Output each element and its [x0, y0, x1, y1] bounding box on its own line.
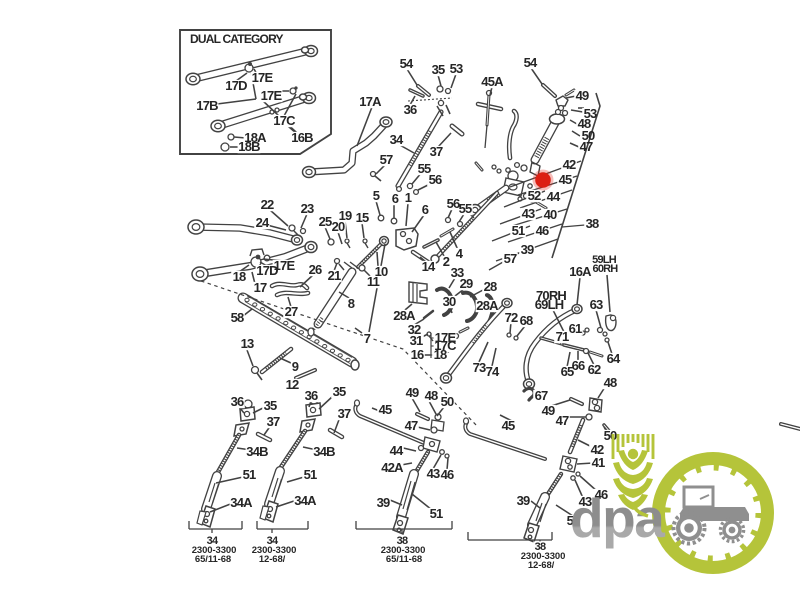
svg-text:36: 36 — [231, 394, 244, 409]
svg-text:37: 37 — [338, 406, 351, 421]
svg-text:39: 39 — [377, 495, 390, 510]
svg-text:9: 9 — [292, 359, 299, 374]
svg-text:35: 35 — [264, 398, 277, 413]
svg-text:50: 50 — [604, 428, 617, 443]
svg-text:40: 40 — [544, 207, 557, 222]
svg-text:42A: 42A — [381, 460, 404, 475]
svg-text:17: 17 — [254, 280, 267, 295]
svg-text:34: 34 — [390, 132, 404, 147]
svg-text:57: 57 — [380, 152, 393, 167]
svg-text:73: 73 — [473, 360, 486, 375]
svg-text:17D: 17D — [225, 78, 247, 93]
svg-text:46: 46 — [536, 223, 549, 238]
svg-text:47: 47 — [556, 413, 569, 428]
svg-text:34B: 34B — [246, 444, 268, 459]
svg-text:36: 36 — [305, 388, 318, 403]
svg-text:8: 8 — [348, 296, 355, 311]
svg-text:38: 38 — [586, 216, 599, 231]
svg-text:6: 6 — [392, 191, 399, 206]
svg-text:42: 42 — [563, 157, 576, 172]
svg-text:47: 47 — [405, 418, 418, 433]
svg-text:45: 45 — [379, 402, 392, 417]
svg-text:49: 49 — [542, 403, 555, 418]
svg-text:50: 50 — [441, 394, 454, 409]
svg-text:18B: 18B — [238, 139, 260, 154]
svg-text:17E: 17E — [252, 70, 274, 85]
svg-text:37: 37 — [267, 414, 280, 429]
svg-text:65/11-68: 65/11-68 — [386, 554, 422, 565]
svg-text:dpa: dpa — [570, 487, 665, 549]
svg-text:16: 16 — [411, 347, 424, 362]
svg-text:63: 63 — [590, 297, 603, 312]
svg-text:22: 22 — [261, 197, 274, 212]
svg-text:49: 49 — [576, 88, 589, 103]
svg-text:12-68/: 12-68/ — [259, 554, 286, 565]
svg-text:61: 61 — [569, 321, 582, 336]
svg-text:60RH: 60RH — [593, 263, 619, 275]
svg-text:34B: 34B — [313, 444, 335, 459]
svg-text:49: 49 — [406, 385, 419, 400]
svg-text:1: 1 — [405, 190, 412, 205]
svg-text:17A: 17A — [359, 94, 382, 109]
svg-text:56: 56 — [429, 172, 442, 187]
svg-text:26: 26 — [309, 262, 322, 277]
svg-text:39: 39 — [521, 242, 534, 257]
svg-text:11: 11 — [367, 274, 380, 289]
svg-text:6: 6 — [422, 202, 429, 217]
svg-text:21: 21 — [328, 268, 341, 283]
svg-text:5: 5 — [373, 188, 380, 203]
svg-text:52: 52 — [528, 188, 541, 203]
svg-text:45: 45 — [502, 418, 515, 433]
svg-text:35: 35 — [432, 62, 445, 77]
svg-text:16B: 16B — [291, 130, 313, 145]
svg-text:15: 15 — [356, 210, 369, 225]
svg-text:34A: 34A — [294, 493, 317, 508]
svg-text:45: 45 — [559, 172, 572, 187]
svg-text:65: 65 — [561, 364, 574, 379]
svg-text:47: 47 — [580, 139, 593, 154]
svg-text:39: 39 — [517, 493, 530, 508]
svg-text:51: 51 — [304, 467, 317, 482]
svg-text:DUAL CATEGORY: DUAL CATEGORY — [190, 32, 284, 46]
svg-text:41: 41 — [592, 455, 605, 470]
svg-text:44: 44 — [390, 443, 404, 458]
svg-text:18: 18 — [434, 347, 447, 362]
svg-text:16A: 16A — [569, 264, 592, 279]
svg-text:67: 67 — [535, 388, 548, 403]
svg-text:17C: 17C — [273, 113, 296, 128]
svg-text:51: 51 — [512, 223, 525, 238]
svg-text:48: 48 — [425, 388, 438, 403]
svg-text:51: 51 — [430, 506, 443, 521]
svg-text:34A: 34A — [230, 495, 253, 510]
svg-text:66: 66 — [572, 358, 585, 373]
svg-text:69LH: 69LH — [535, 297, 564, 312]
svg-text:72: 72 — [505, 310, 518, 325]
svg-text:28A: 28A — [476, 298, 499, 313]
svg-text:17D: 17D — [256, 263, 278, 278]
svg-text:2: 2 — [443, 254, 450, 269]
svg-text:31: 31 — [410, 333, 423, 348]
svg-text:12-68/: 12-68/ — [528, 560, 555, 571]
svg-text:30: 30 — [443, 294, 456, 309]
svg-text:57: 57 — [504, 251, 517, 266]
svg-text:44: 44 — [547, 189, 561, 204]
svg-text:28A: 28A — [393, 308, 416, 323]
svg-text:62: 62 — [588, 362, 601, 377]
svg-text:24: 24 — [256, 215, 270, 230]
svg-text:45A: 45A — [481, 74, 504, 89]
svg-text:27: 27 — [285, 304, 298, 319]
svg-text:55: 55 — [459, 201, 472, 216]
svg-text:35: 35 — [333, 384, 346, 399]
svg-text:25: 25 — [319, 214, 332, 229]
svg-text:18: 18 — [233, 269, 246, 284]
svg-text:48: 48 — [604, 375, 617, 390]
svg-text:29: 29 — [460, 276, 473, 291]
svg-text:53: 53 — [450, 61, 463, 76]
svg-text:14: 14 — [422, 259, 436, 274]
svg-text:23: 23 — [301, 201, 314, 216]
svg-text:43: 43 — [522, 206, 535, 221]
svg-text:74: 74 — [486, 364, 500, 379]
svg-text:12: 12 — [286, 377, 299, 392]
svg-text:54: 54 — [524, 55, 538, 70]
svg-text:36: 36 — [404, 102, 417, 117]
svg-text:46: 46 — [441, 467, 454, 482]
svg-text:28: 28 — [484, 279, 497, 294]
svg-text:13: 13 — [241, 336, 254, 351]
svg-text:17B: 17B — [196, 98, 218, 113]
svg-text:20: 20 — [332, 219, 345, 234]
svg-text:37: 37 — [430, 144, 443, 159]
svg-text:71: 71 — [556, 329, 569, 344]
svg-text:43: 43 — [427, 466, 440, 481]
svg-text:65/11-68: 65/11-68 — [195, 554, 231, 565]
svg-text:51: 51 — [243, 467, 256, 482]
svg-text:68: 68 — [520, 313, 533, 328]
svg-text:54: 54 — [400, 56, 414, 71]
svg-text:64: 64 — [607, 351, 621, 366]
svg-text:58: 58 — [231, 310, 244, 325]
svg-text:7: 7 — [364, 331, 371, 346]
svg-text:17E: 17E — [261, 88, 283, 103]
